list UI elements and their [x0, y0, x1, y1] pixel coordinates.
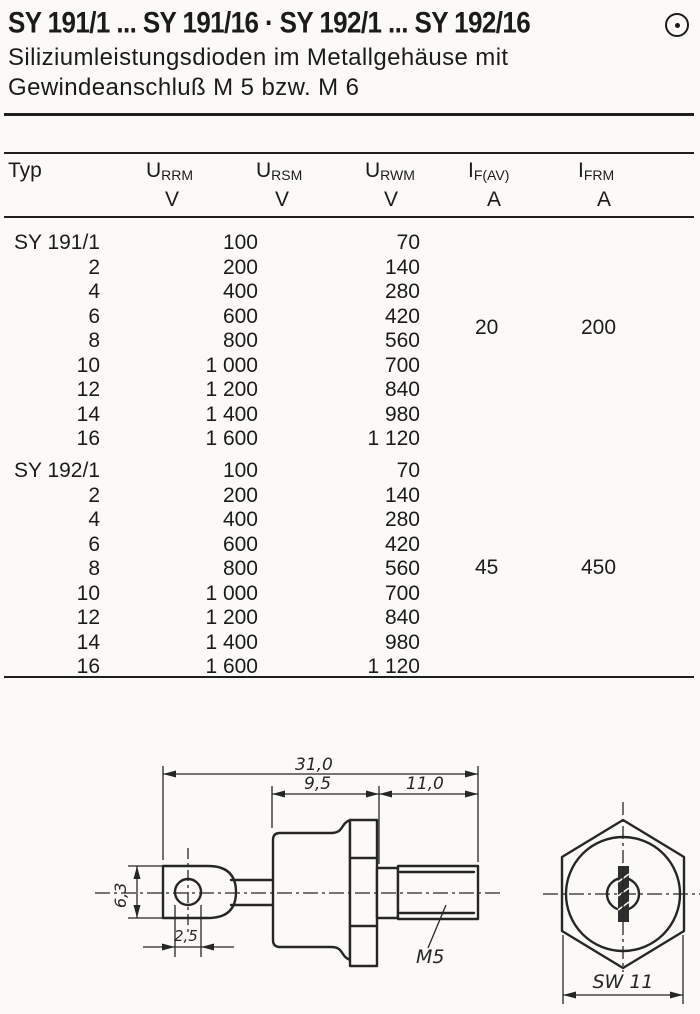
page-title: SY 191/1 ... SY 191/16 · SY 192/1 ... SY… — [8, 5, 530, 41]
table-row: 161 6001 120 — [8, 655, 692, 679]
rule-header-bottom — [4, 216, 694, 218]
urrm-cell: 1 000 — [108, 582, 258, 606]
typ-cell: 4 — [8, 508, 100, 532]
dim-hole-label: 2,5 — [174, 927, 198, 945]
urrm-cell: 800 — [108, 329, 258, 353]
urwm-cell: 420 — [278, 533, 420, 557]
table-row: SY 192/110070 — [8, 459, 692, 483]
package-outline-drawing: 31,0 9,5 11,0 6,3 2,5 M5 SW 11 — [0, 740, 700, 1014]
typ-cell: 8 — [8, 329, 100, 353]
thread-label: M5 — [416, 946, 444, 968]
table-row: 141 400980 — [8, 631, 692, 655]
urwm-cell: 840 — [278, 606, 420, 630]
column-header-u-rwm: URWMV — [365, 159, 415, 212]
wrench-size-label: SW 11 — [592, 971, 653, 993]
urwm-cell: 280 — [278, 280, 420, 304]
urrm-cell: 1 400 — [108, 631, 258, 655]
typ-cell: 14 — [8, 403, 100, 427]
urwm-cell: 280 — [278, 508, 420, 532]
urrm-cell: 400 — [108, 280, 258, 304]
table-row: SY 191/110070 — [8, 231, 692, 255]
urrm-cell: 1 200 — [108, 378, 258, 402]
typ-cell: 14 — [8, 631, 100, 655]
subtitle-line-1: Siliziumleistungsdioden im Metallgehäuse… — [8, 43, 509, 73]
subtitle-line-2: Gewindeanschluß M 5 bzw. M 6 — [8, 73, 509, 103]
dim-body-label: 9,5 — [304, 774, 331, 794]
urwm-cell: 980 — [278, 631, 420, 655]
column-header-i-frm: IFRMA — [578, 159, 614, 212]
typ-cell: 6 — [8, 305, 100, 329]
urrm-cell: 1 400 — [108, 403, 258, 427]
rule-table-top — [4, 152, 694, 154]
column-header-u-rrm: URRMV — [146, 159, 193, 212]
if-av-value: 45 — [475, 556, 498, 580]
circled-dot-icon — [665, 13, 689, 37]
urrm-cell: 1 600 — [108, 655, 258, 679]
typ-cell: 10 — [8, 354, 100, 378]
urwm-cell: 840 — [278, 378, 420, 402]
typ-cell: 12 — [8, 378, 100, 402]
typ-cell: SY 192/1 — [8, 459, 100, 483]
typ-cell: 12 — [8, 606, 100, 630]
dim-overall-label: 31,0 — [295, 755, 333, 775]
datasheet-page: SY 191/1 ... SY 191/16 · SY 192/1 ... SY… — [0, 0, 700, 1014]
urwm-cell: 70 — [278, 231, 420, 255]
rule-title-bottom — [4, 113, 694, 116]
typ-cell: 4 — [8, 280, 100, 304]
urrm-cell: 600 — [108, 533, 258, 557]
urrm-cell: 1 000 — [108, 354, 258, 378]
typ-cell: 2 — [8, 484, 100, 508]
urrm-cell: 1 200 — [108, 606, 258, 630]
typ-cell: 16 — [8, 427, 100, 451]
column-header-i-fav: IF(AV)A — [468, 159, 509, 212]
dim-lug-height-label: 6,3 — [111, 883, 130, 908]
urwm-cell: 420 — [278, 305, 420, 329]
urwm-cell: 700 — [278, 582, 420, 606]
urrm-cell: 100 — [108, 459, 258, 483]
table-row: 6600420 — [8, 533, 692, 557]
table-row: 2200140 — [8, 256, 692, 280]
dim-6-3-lines — [128, 866, 163, 918]
ifrm-value: 450 — [581, 556, 616, 580]
urwm-cell: 70 — [278, 459, 420, 483]
urwm-cell: 700 — [278, 354, 420, 378]
table-row: 2200140 — [8, 484, 692, 508]
column-header-typ: Typ — [8, 159, 42, 183]
column-header-u-rsm: URSMV — [256, 159, 302, 212]
urrm-cell: 600 — [108, 305, 258, 329]
urwm-cell: 1 120 — [278, 655, 420, 679]
dim-stud-label: 11,0 — [406, 774, 444, 794]
urwm-cell: 1 120 — [278, 427, 420, 451]
urwm-cell: 560 — [278, 329, 420, 353]
urrm-cell: 800 — [108, 557, 258, 581]
typ-cell: 6 — [8, 533, 100, 557]
table-row: 121 200840 — [8, 378, 692, 402]
table-row: 4400280 — [8, 508, 692, 532]
typ-cell: SY 191/1 — [8, 231, 100, 255]
urrm-cell: 100 — [108, 231, 258, 255]
urrm-cell: 1 600 — [108, 427, 258, 451]
table-row: 141 400980 — [8, 403, 692, 427]
urrm-cell: 200 — [108, 256, 258, 280]
table-row: 121 200840 — [8, 606, 692, 630]
table-row: 4400280 — [8, 280, 692, 304]
typ-cell: 10 — [8, 582, 100, 606]
urwm-cell: 560 — [278, 557, 420, 581]
ifrm-value: 200 — [581, 316, 616, 340]
urrm-cell: 400 — [108, 508, 258, 532]
typ-cell: 2 — [8, 256, 100, 280]
if-av-value: 20 — [475, 316, 498, 340]
typ-cell: 8 — [8, 557, 100, 581]
urwm-cell: 140 — [278, 484, 420, 508]
diode-body — [273, 820, 350, 960]
urwm-cell: 140 — [278, 256, 420, 280]
page-subtitle: Siliziumleistungsdioden im Metallgehäuse… — [8, 43, 509, 103]
table-row: 101 000700 — [8, 582, 692, 606]
typ-cell: 16 — [8, 655, 100, 679]
urwm-cell: 980 — [278, 403, 420, 427]
table-row: 101 000700 — [8, 354, 692, 378]
table-row: 161 6001 120 — [8, 427, 692, 451]
urrm-cell: 200 — [108, 484, 258, 508]
